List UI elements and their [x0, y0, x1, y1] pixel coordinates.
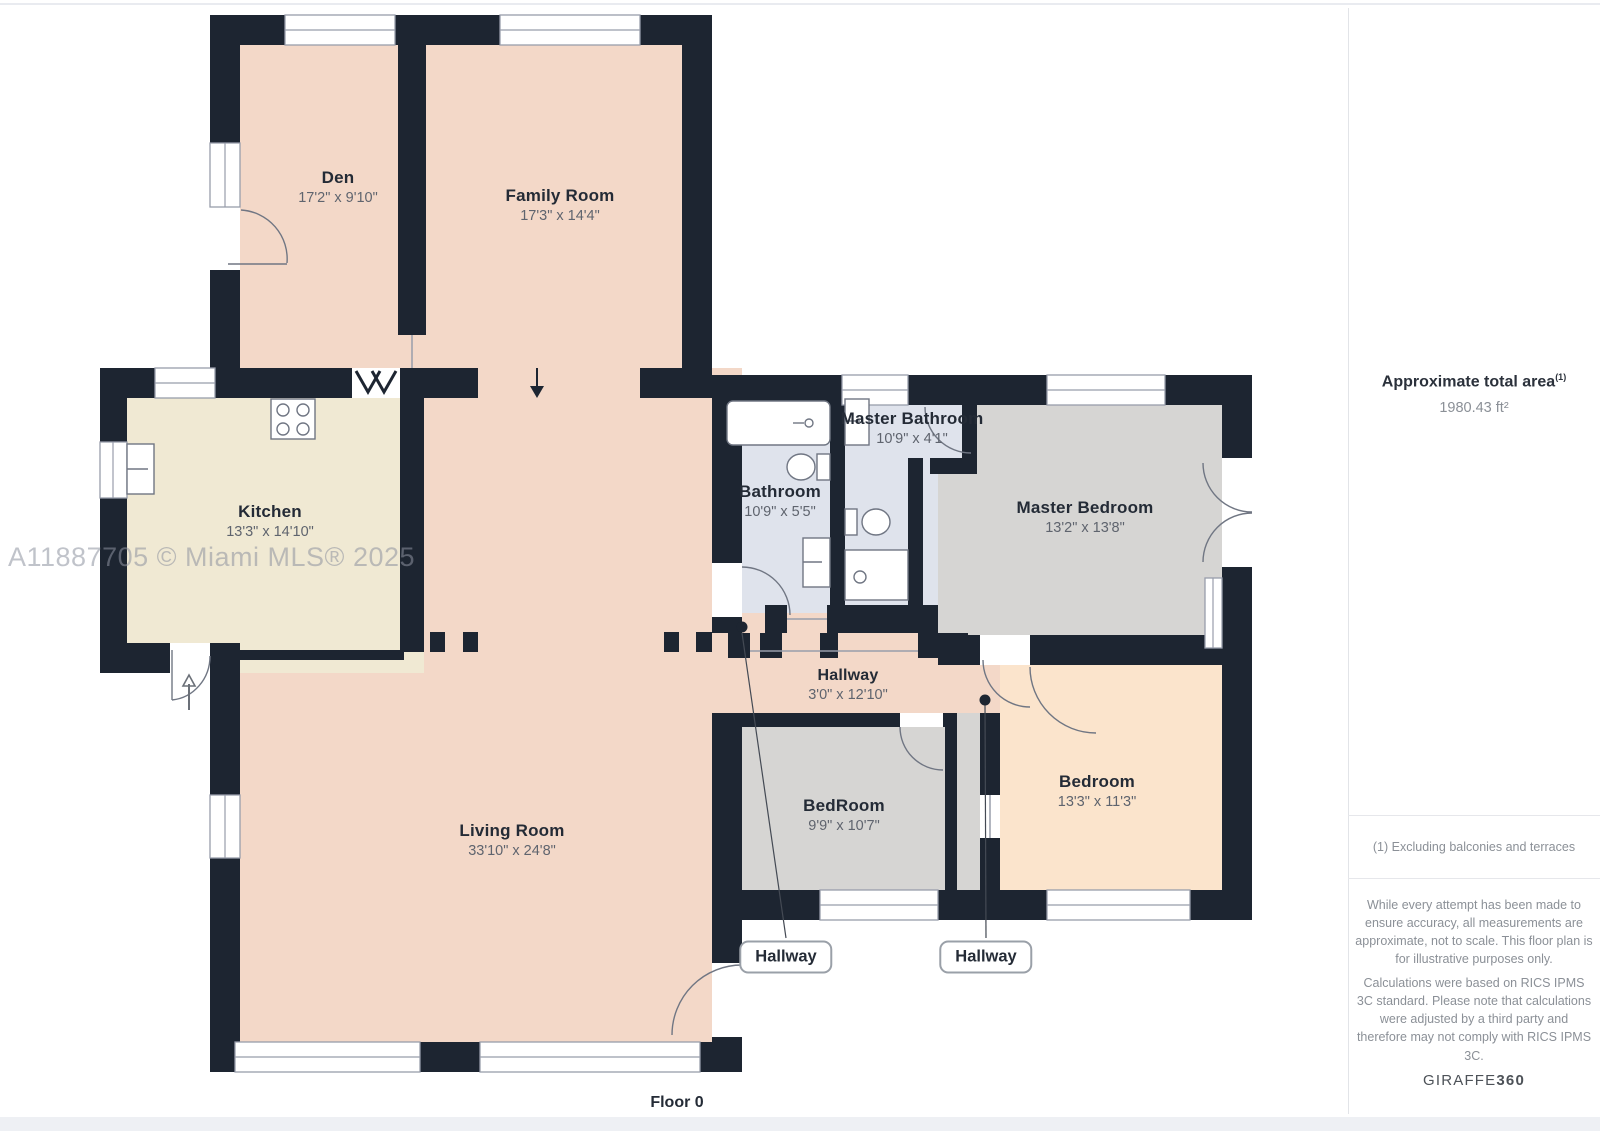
callout-hallway-1: Hallway — [739, 941, 832, 974]
toilet-icon — [817, 454, 830, 480]
mls-watermark: A11887705 © Miami MLS® 2025 — [8, 542, 415, 573]
camera-dot — [980, 695, 991, 706]
floorplan-page: Den 17'2" x 9'10" Family Room 17'3" x 14… — [0, 0, 1600, 1131]
sidebar-left-border — [1348, 8, 1349, 1114]
mbath-sink-icon — [845, 399, 869, 445]
giraffe360-logo: GIRAFFE360 — [1354, 1072, 1594, 1089]
area-value: 1980.43 ft² — [1354, 400, 1594, 416]
disclaimer-accuracy: While every attempt has been made to ens… — [1354, 896, 1594, 969]
stove-icon — [271, 399, 315, 439]
area-title: Approximate total area(1) — [1354, 372, 1594, 391]
mbath-toilet-icon — [845, 509, 857, 535]
disclaimer-rics: Calculations were based on RICS IPMS 3C … — [1354, 974, 1594, 1065]
floor-label: Floor 0 — [650, 1094, 703, 1112]
callout-hallway-2: Hallway — [939, 941, 1032, 974]
camera-dot — [737, 622, 748, 633]
area-footnote: (1) Excluding balconies and terraces — [1354, 840, 1594, 854]
bathtub-icon — [727, 401, 830, 445]
page-bottom-edge — [0, 1117, 1600, 1131]
sidebar-divider-2 — [1348, 878, 1600, 879]
sidebar-divider-1 — [1348, 815, 1600, 816]
